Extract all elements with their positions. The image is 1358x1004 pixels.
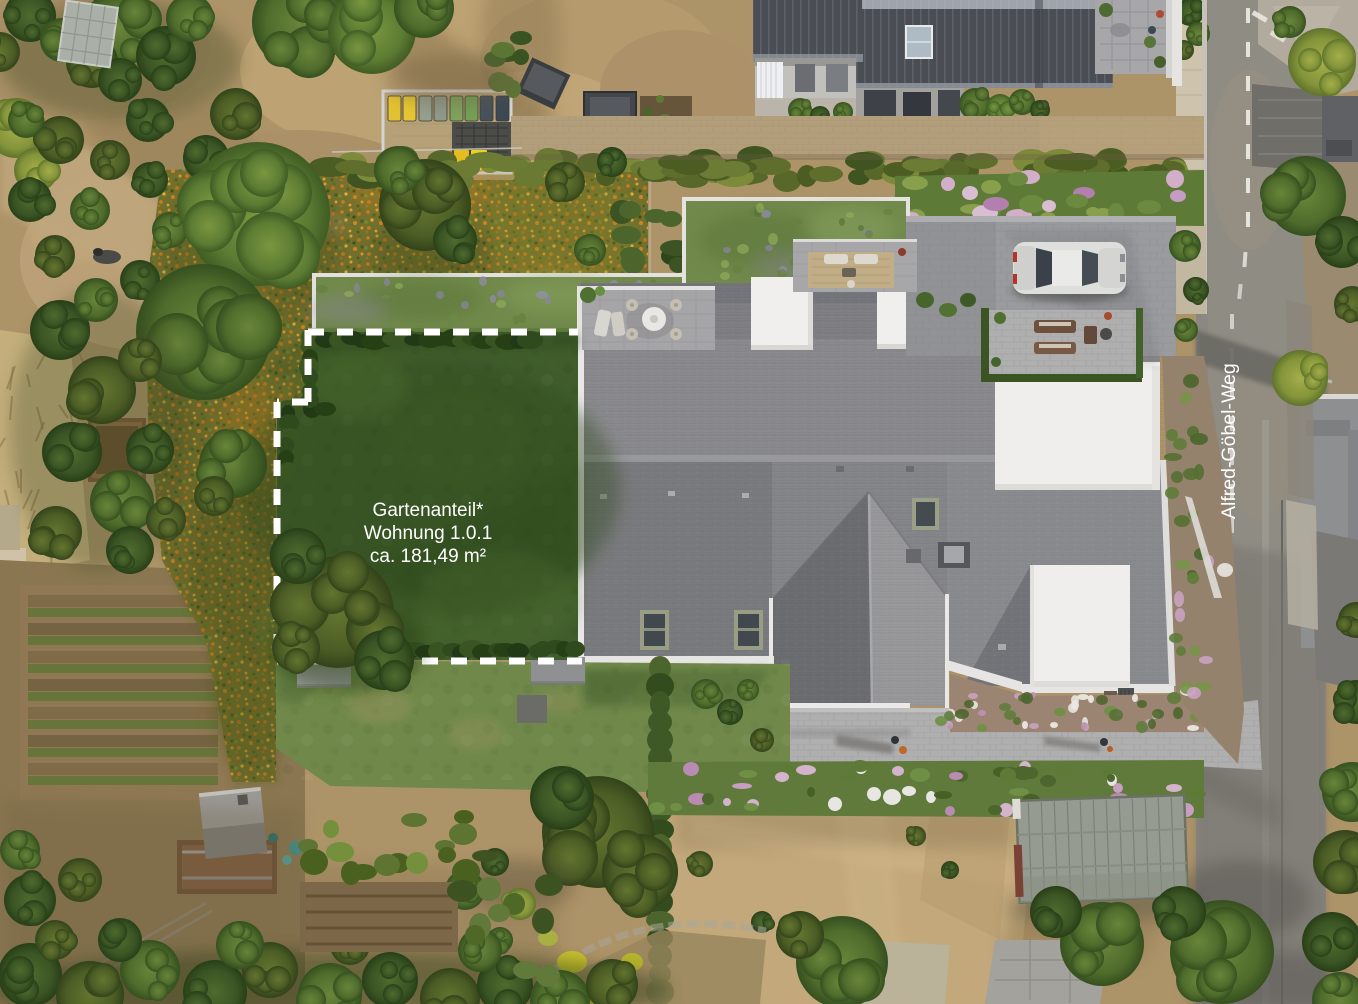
svg-text:Gartenanteil*: Gartenanteil*: [373, 500, 485, 521]
svg-text:Wohnung 1.0.1: Wohnung 1.0.1: [364, 523, 493, 544]
svg-text:ca. 181,49 m²: ca. 181,49 m²: [370, 546, 486, 567]
svg-text:Alfred-Göbel-Weg: Alfred-Göbel-Weg: [1218, 363, 1240, 519]
